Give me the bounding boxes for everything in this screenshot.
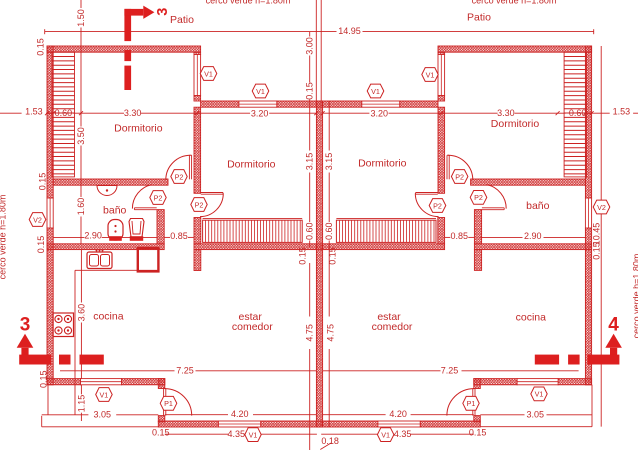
- svg-text:Patio: Patio: [170, 14, 194, 26]
- svg-text:cocina: cocina: [93, 311, 124, 323]
- svg-text:cerco verde h=1.80m: cerco verde h=1.80m: [0, 195, 8, 280]
- svg-text:cerco verde h=1.80m: cerco verde h=1.80m: [632, 254, 638, 339]
- svg-text:V1: V1: [256, 87, 265, 96]
- svg-text:0.60: 0.60: [569, 108, 587, 118]
- svg-text:0.15: 0.15: [39, 370, 49, 388]
- svg-text:3.30: 3.30: [124, 108, 142, 118]
- svg-text:0.15: 0.15: [469, 428, 487, 438]
- svg-text:V1: V1: [204, 69, 213, 78]
- svg-text:V1: V1: [426, 70, 435, 79]
- svg-text:baño: baño: [526, 200, 550, 212]
- svg-text:3.05: 3.05: [94, 409, 112, 419]
- svg-text:4.75: 4.75: [305, 324, 315, 342]
- svg-text:V2: V2: [33, 215, 42, 224]
- svg-text:baño: baño: [103, 205, 127, 217]
- svg-text:4: 4: [608, 315, 619, 336]
- svg-text:0.18: 0.18: [321, 436, 339, 446]
- svg-text:P2: P2: [455, 172, 464, 181]
- svg-text:P1: P1: [467, 399, 476, 408]
- svg-text:0.15: 0.15: [38, 173, 48, 191]
- svg-text:V1: V1: [535, 390, 544, 399]
- svg-text:0.60: 0.60: [305, 222, 315, 240]
- svg-text:Dormitorio: Dormitorio: [114, 123, 163, 135]
- svg-text:Dormitorio: Dormitorio: [227, 159, 276, 171]
- svg-text:0.85: 0.85: [170, 231, 188, 241]
- svg-text:cocina: cocina: [516, 311, 547, 323]
- svg-text:comedor: comedor: [232, 321, 273, 333]
- svg-text:P2: P2: [474, 193, 483, 202]
- svg-text:V1: V1: [249, 430, 258, 439]
- svg-text:Patio: Patio: [467, 12, 491, 24]
- svg-text:1.15: 1.15: [76, 395, 86, 413]
- svg-text:comedor: comedor: [372, 321, 413, 333]
- svg-text:14.95: 14.95: [338, 26, 361, 36]
- svg-text:P2: P2: [195, 200, 204, 209]
- svg-text:V1: V1: [381, 430, 390, 439]
- svg-text:0.15: 0.15: [305, 82, 315, 100]
- svg-text:1.50: 1.50: [76, 9, 86, 27]
- svg-text:7.25: 7.25: [176, 365, 194, 375]
- svg-text:P2: P2: [154, 193, 163, 202]
- svg-text:3.50: 3.50: [76, 127, 86, 145]
- svg-text:V1: V1: [100, 390, 109, 399]
- svg-text:7.25: 7.25: [441, 365, 459, 375]
- svg-text:3.20: 3.20: [251, 109, 269, 119]
- svg-text:2.90: 2.90: [84, 231, 102, 241]
- svg-text:Dormitorio: Dormitorio: [491, 118, 540, 130]
- svg-text:0.85: 0.85: [451, 231, 469, 241]
- svg-text:cerco verde h=1.80m: cerco verde h=1.80m: [206, 0, 291, 5]
- svg-text:3.60: 3.60: [76, 304, 86, 322]
- svg-text:V1: V1: [371, 87, 380, 96]
- svg-text:3.15: 3.15: [305, 153, 315, 171]
- svg-text:3.05: 3.05: [527, 409, 545, 419]
- svg-text:3: 3: [20, 315, 31, 336]
- svg-text:0.60: 0.60: [324, 222, 334, 240]
- svg-text:3.15: 3.15: [324, 153, 334, 171]
- svg-text:V2: V2: [597, 203, 606, 212]
- svg-text:4.75: 4.75: [326, 324, 336, 342]
- svg-text:Dormitorio: Dormitorio: [358, 158, 407, 170]
- svg-text:0.60: 0.60: [55, 108, 73, 118]
- svg-text:P2: P2: [175, 172, 184, 181]
- svg-text:4.20: 4.20: [231, 409, 249, 419]
- svg-text:0.15: 0.15: [328, 247, 338, 265]
- svg-text:4.20: 4.20: [389, 409, 407, 419]
- svg-text:4.35: 4.35: [394, 429, 412, 439]
- svg-text:0.15: 0.15: [36, 236, 46, 254]
- svg-text:0.15: 0.15: [36, 38, 46, 56]
- svg-text:3.20: 3.20: [371, 109, 389, 119]
- svg-text:1.53: 1.53: [25, 107, 43, 117]
- svg-text:P1: P1: [164, 399, 173, 408]
- svg-text:3.30: 3.30: [497, 108, 515, 118]
- svg-text:0.15: 0.15: [298, 247, 308, 265]
- svg-text:P2: P2: [433, 201, 442, 210]
- svg-text:4.35: 4.35: [228, 429, 246, 439]
- svg-text:2.90: 2.90: [524, 231, 542, 241]
- svg-text:3.00: 3.00: [305, 37, 315, 55]
- svg-text:0.15: 0.15: [152, 428, 170, 438]
- svg-text:10.45: 10.45: [591, 223, 601, 246]
- svg-text:1.53: 1.53: [613, 107, 631, 117]
- svg-text:3: 3: [155, 8, 171, 16]
- svg-text:cerco verde h=1.80m: cerco verde h=1.80m: [472, 0, 557, 5]
- svg-text:1.60: 1.60: [76, 198, 86, 216]
